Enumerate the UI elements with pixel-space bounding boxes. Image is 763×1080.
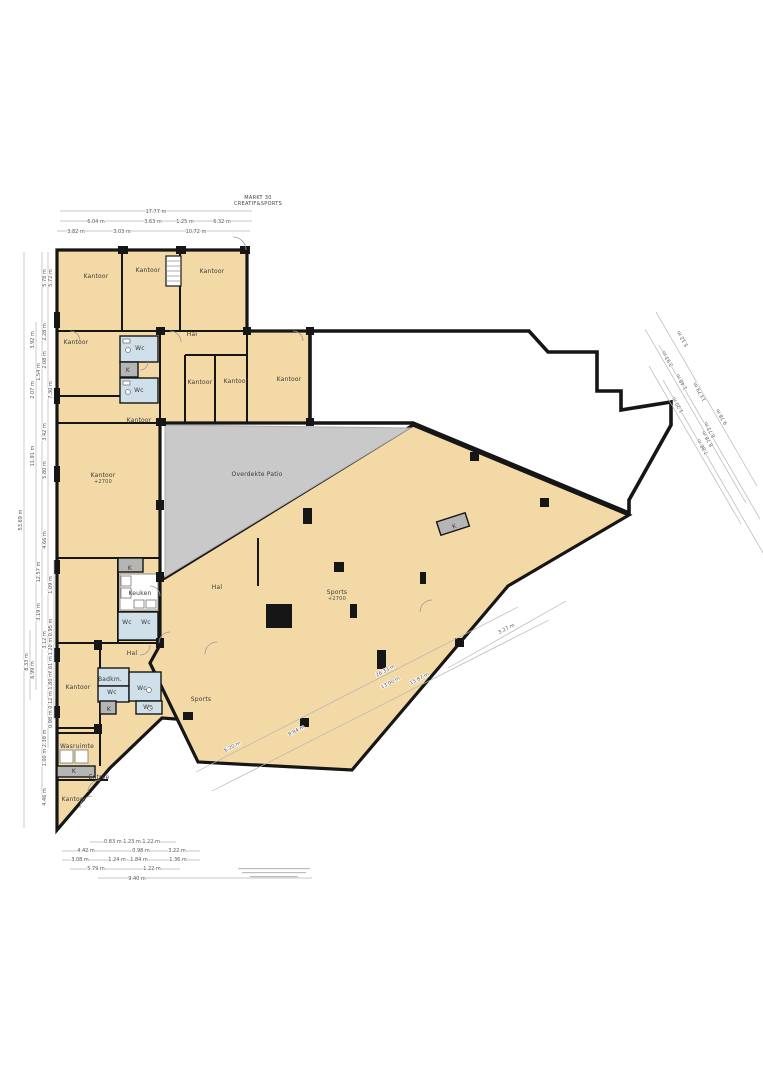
dimension-label: 3.42 m — [42, 423, 48, 441]
room-label: Kantoor — [224, 378, 249, 385]
room-label: Hal — [187, 331, 198, 338]
room-label: Hal — [212, 584, 223, 591]
room-label-sub: +2700 — [328, 596, 346, 602]
dimension-label: 0.98 m 0.12 m 1.80 m — [48, 672, 54, 728]
dimension-label: 3.82 m — [67, 229, 85, 235]
room-label: Hal — [127, 650, 138, 657]
toilet — [126, 390, 131, 395]
dimension-label: 7.30 m — [48, 381, 54, 399]
dimension-label: 4.42 m — [77, 848, 95, 854]
dimension-label: 1.36 m — [169, 857, 187, 863]
dimension-label: 5.79 m — [87, 866, 105, 872]
dimension-label: 1.09 m — [48, 576, 54, 594]
dimension-label: 6.32 m — [213, 219, 231, 225]
dimension-label: 2.61 m — [48, 656, 54, 674]
dimension-label: 4.66 m — [42, 531, 48, 549]
sink — [123, 381, 130, 385]
room-label: Kantoor — [127, 417, 152, 424]
room-label: Wc — [143, 704, 153, 711]
dimension-label: 2.07 m — [30, 381, 36, 399]
dimension-label: 3.08 m — [71, 857, 89, 863]
room-label: Wc — [107, 689, 117, 696]
dimension-label: 1.24 m — [108, 857, 126, 863]
sink — [123, 339, 130, 343]
toilet — [126, 348, 131, 353]
washer — [75, 750, 88, 763]
dimension-label: 1.00 m 2.38 m — [42, 729, 48, 766]
room-label: Sports+2700 — [327, 589, 347, 602]
dimension-label: 11.91 m — [30, 445, 36, 466]
room-label: Wc — [135, 345, 145, 352]
dimension-label: 3.92 m — [30, 331, 36, 349]
dimension-label: 1.54 m — [36, 363, 42, 381]
dimension-label: 0.83 m 1.23 m 1.22 m — [104, 839, 160, 845]
floorplan-page: KantoorKantoorKantoorHalKantoorWcKWcKant… — [0, 0, 763, 1080]
dimension-label: 6.99 m — [30, 661, 36, 679]
dimension-label: 5.80 m — [42, 461, 48, 479]
room-label: Kantoor — [136, 267, 161, 274]
dimension-label: 3.22 m — [168, 848, 186, 854]
dimension-label: 17.77 m — [146, 209, 167, 215]
room-label: Wc — [137, 685, 147, 692]
dimension-label: 1.20 m 0.95 m — [48, 618, 54, 655]
room-label: Wc — [122, 619, 132, 626]
dimension-label: 6.04 m — [87, 219, 105, 225]
room-label: Kantoor — [188, 379, 213, 386]
toilet — [147, 688, 152, 693]
dimension-label: 5.72 m — [48, 269, 54, 287]
dimension-label: 0.98 m — [132, 848, 150, 854]
dimension-label: 1.22 m — [143, 866, 161, 872]
dimension-label: 1.84 m — [130, 857, 148, 863]
dimension-label: 9.40 m — [128, 876, 146, 882]
room-label: Kantoor — [62, 796, 87, 803]
floor-plan-svg: KantoorKantoorKantoorHalKantoorWcKWcKant… — [0, 0, 763, 1080]
room-label: Kantoor — [66, 684, 91, 691]
room-label: Badkm. — [98, 676, 122, 683]
staircase — [166, 256, 181, 286]
room-label: Wasruimte — [60, 743, 94, 750]
dimension-label: 3.19 m — [36, 603, 42, 621]
dimension-label: 53.69 m — [18, 509, 24, 530]
room-label: Kantoor — [200, 268, 225, 275]
dimension-label: 2.08 m — [42, 351, 48, 369]
dimension-label: 10.72 m — [186, 229, 207, 235]
dimension-label: 3.03 m — [113, 229, 131, 235]
dimension-label: 2.28 m — [42, 323, 48, 341]
room-label: Wc — [141, 619, 151, 626]
room-label: Overdekte Patio — [232, 471, 283, 478]
room-label: Sports — [191, 696, 211, 703]
dimension-label: 1.25 m — [176, 219, 194, 225]
room-label: Kantoor — [277, 376, 302, 383]
room-label: Keuken — [128, 590, 151, 597]
wc-room — [118, 612, 158, 640]
dimension-label: 12.57 m — [36, 561, 42, 582]
washer — [60, 750, 73, 763]
room-label: Wc — [134, 387, 144, 394]
room-label: Kantoor — [84, 273, 109, 280]
room-label: Kantoor — [64, 339, 89, 346]
room-label: Entree — [89, 774, 110, 781]
dimension-label: 4.46 m — [42, 788, 48, 806]
room-label-sub: +2700 — [94, 479, 112, 485]
dimension-label: 3.63 m — [144, 219, 162, 225]
